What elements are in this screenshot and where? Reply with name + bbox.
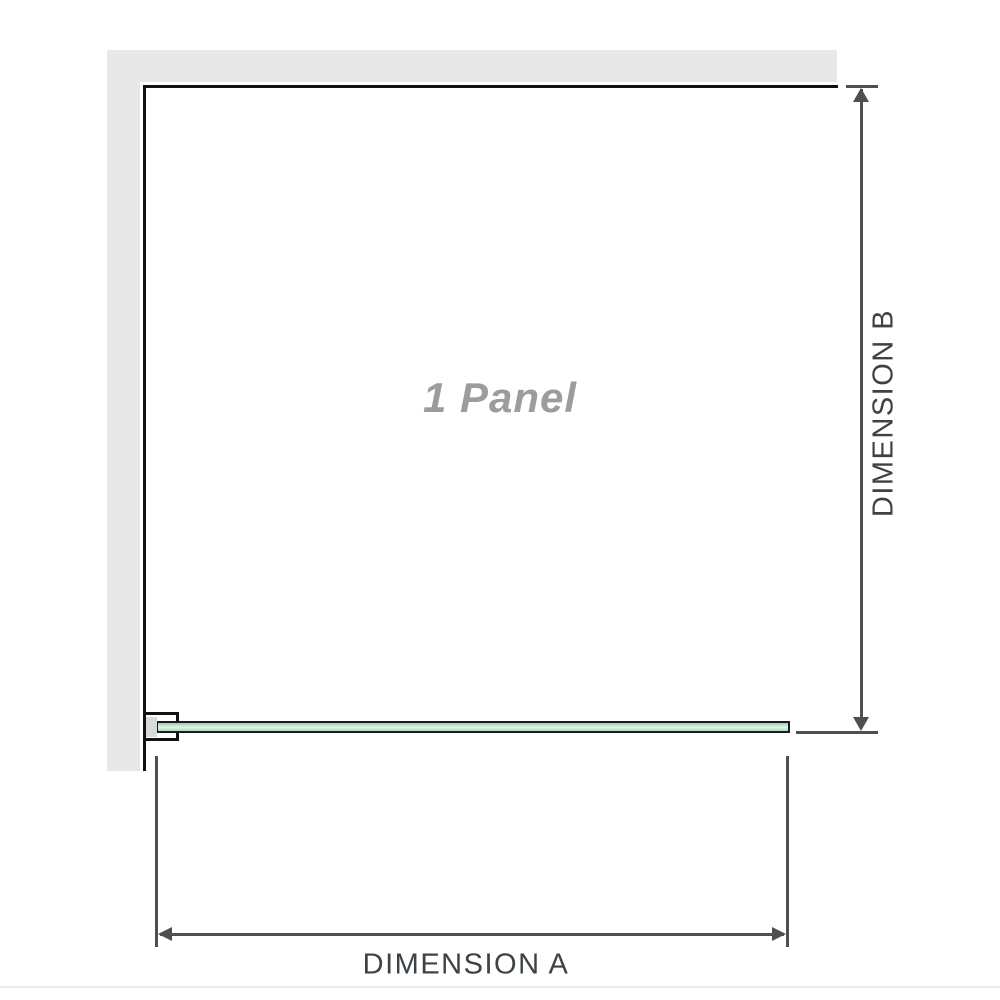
- panel-frame-top-border: [143, 85, 838, 88]
- dimension-b-line: [860, 89, 863, 727]
- image-bottom-rule: [0, 986, 1000, 988]
- wall-top: [107, 50, 837, 82]
- dimension-a-right-extension-line: [786, 756, 789, 947]
- panel-count-label: 1 Panel: [423, 374, 577, 422]
- dimension-a-left-extension-line: [155, 756, 158, 947]
- dimension-b-bottom-tick: [796, 731, 878, 734]
- arrow-right-icon: [772, 927, 786, 941]
- bracket-inner-pad: [146, 717, 157, 737]
- arrow-left-icon: [158, 927, 172, 941]
- dimension-a-label: DIMENSION A: [363, 949, 570, 982]
- arrow-down-icon: [853, 717, 869, 731]
- panel-frame-left-border: [143, 85, 146, 771]
- dimension-b-label: DIMENSION B: [868, 309, 901, 517]
- wall-left: [107, 50, 140, 771]
- glass-panel: [156, 721, 790, 733]
- dimension-a-line: [160, 933, 784, 936]
- panel-dimension-diagram: 1 Panel DIMENSION B DIMENSION A: [0, 0, 1000, 1000]
- arrow-up-icon: [853, 88, 869, 102]
